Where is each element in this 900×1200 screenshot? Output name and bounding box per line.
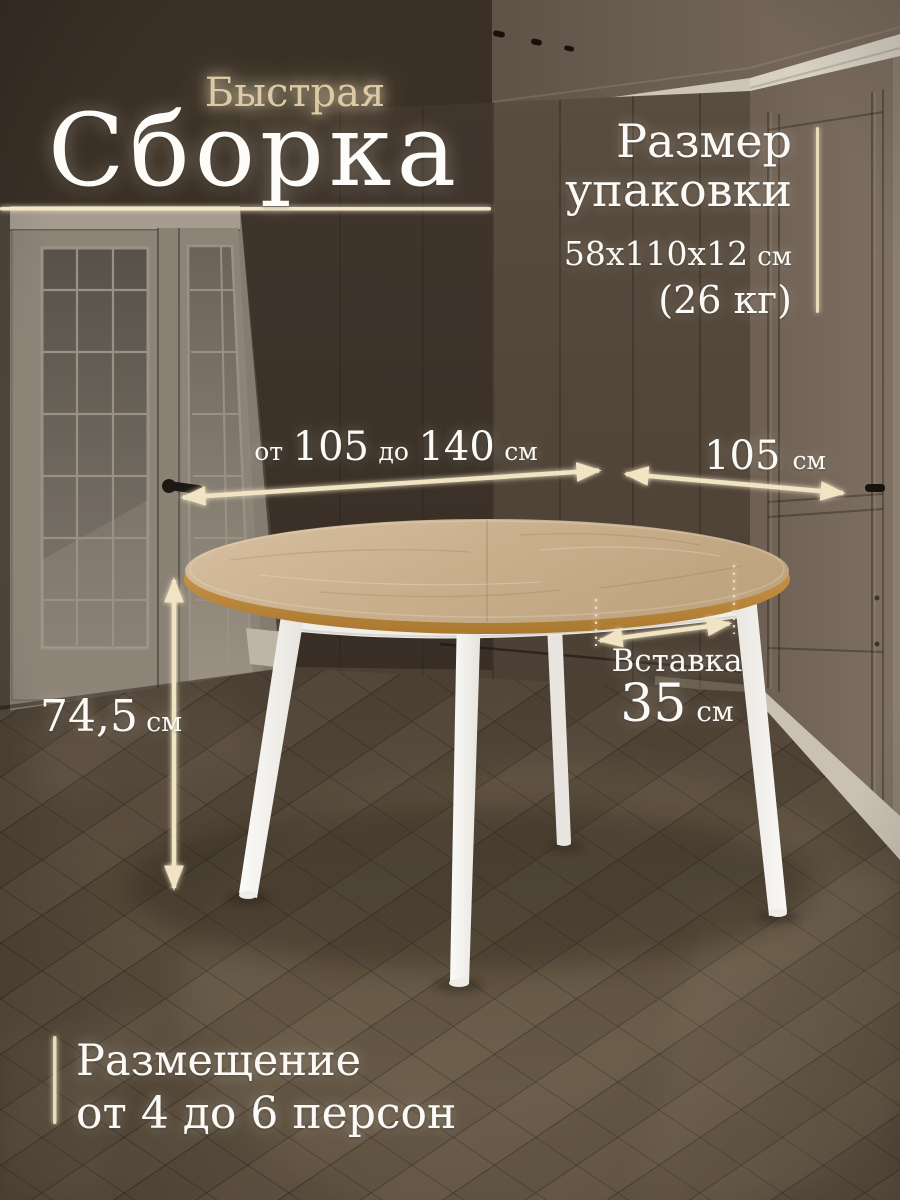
product-card: Быстрая Сборка Размер упаковки 58x110x12… [0,0,900,1200]
insert-arrow [600,624,730,641]
length-arrow [183,471,599,498]
width-arrow [626,474,843,493]
dimension-annotations [0,0,900,1200]
title-underline-rule [0,207,491,211]
seating-rule [53,1036,57,1124]
package-rule [816,127,819,313]
